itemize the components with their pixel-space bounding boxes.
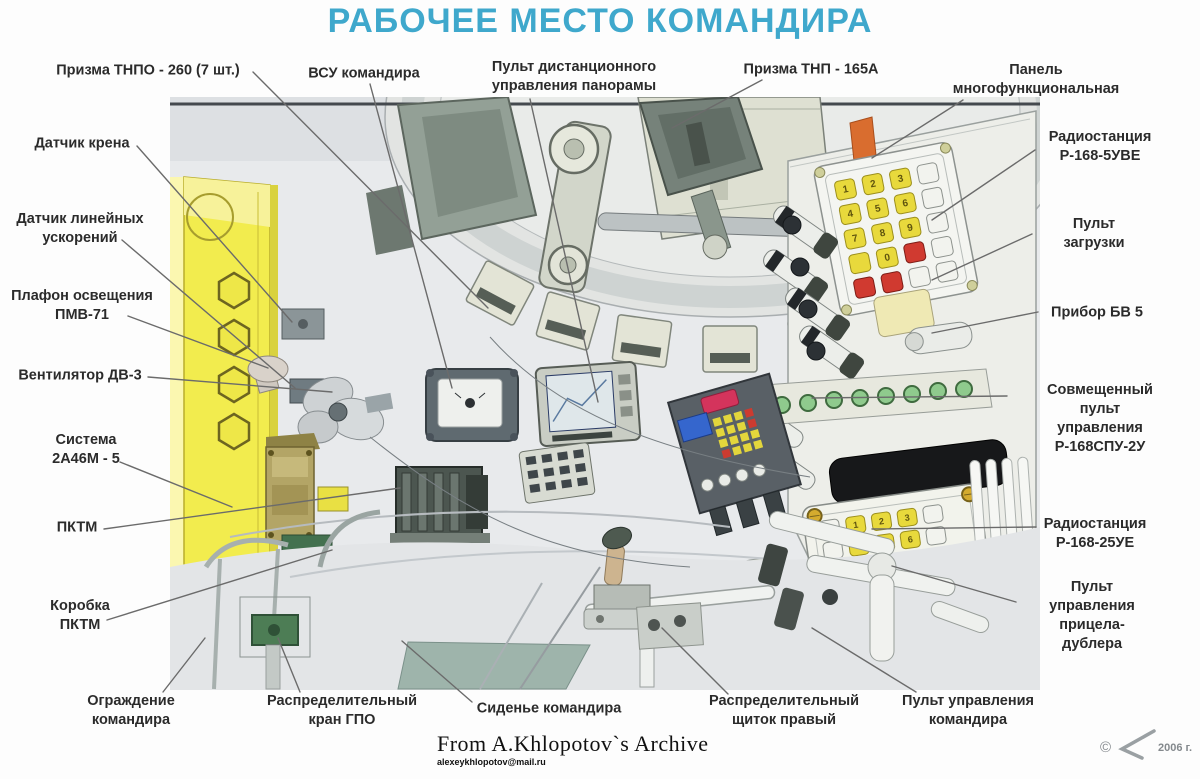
pktm-gun-box: [390, 467, 490, 543]
label-pult-zagruzki: Пульт загрузки: [1041, 215, 1147, 253]
panorama-keypad: [519, 442, 596, 503]
right-distribution-box: [637, 603, 704, 649]
keypad-key: [935, 260, 958, 282]
keypad-key: [922, 504, 943, 523]
label-pult-panoramy: Пульт дистанционного управления панорамы: [492, 58, 656, 96]
label-pult-upravleniya-komandira: Пульт управления командира: [902, 692, 1034, 730]
copyright-icon: ©: [1100, 739, 1111, 756]
label-ograzhdenie-komandira: Ограждение командира: [87, 692, 175, 730]
label-vsu-komandira: ВСУ командира: [308, 65, 419, 84]
roll-sensor: [282, 309, 324, 339]
multifunction-panel: 1234567890: [813, 141, 979, 317]
keypad-key: [931, 236, 954, 258]
copyright-mark: © 2006 г.: [1096, 729, 1196, 771]
archive-credit-email: alexeykhlopotov@mail.ru: [437, 757, 709, 767]
turret-interior-scene: 1234567890: [170, 97, 1040, 690]
keypad-key: [880, 271, 903, 293]
keypad-key: [921, 187, 944, 209]
keypad-key: [903, 241, 926, 263]
page-title: РАБОЧЕЕ МЕСТО КОМАНДИРА: [0, 2, 1200, 41]
keypad-key: [926, 211, 949, 233]
label-radio-r168-25ue: Радиостанция Р-168-25УЕ: [1044, 515, 1147, 553]
label-sistema-2a46m: Система 2А46М - 5: [52, 431, 120, 469]
label-radio-r168-5uve: Радиостанция Р-168-5УВЕ: [1049, 128, 1152, 166]
label-prizma-tnpo-260: Призма ТНПО - 260 (7 шт.): [56, 62, 240, 81]
archive-credit: From A.Khlopotov`s Archive alexeykhlopot…: [437, 731, 709, 767]
keypad-key: [925, 526, 946, 545]
chevron-logo-icon: [1116, 729, 1158, 765]
label-panel-mnogofunkcionalnaya: Панель многофункциональная: [953, 61, 1120, 99]
vsu-device: [426, 369, 518, 441]
copyright-year: 2006 г.: [1158, 742, 1192, 754]
label-korobka-pktm: Коробка ПКТМ: [50, 597, 110, 635]
label-sovmeshchenny-pult: Совмещенный пульт управления Р-168СПУ-2У: [1047, 381, 1153, 457]
archive-credit-text: From A.Khlopotov`s Archive: [437, 731, 709, 757]
keypad-key: [908, 266, 931, 288]
panorama-remote-display: [535, 362, 640, 447]
label-plafon-pmv71: Плафон освещения ПМВ-71: [11, 287, 153, 325]
label-sidene-komandira: Сиденье командира: [477, 700, 622, 719]
label-pribor-bv5: Прибор БВ 5: [1051, 304, 1143, 323]
keypad-key: [848, 252, 871, 274]
keypad-key: [916, 162, 939, 184]
label-ventilyator-dv3: Вентилятор ДВ-3: [18, 367, 141, 386]
label-pktm: ПКТМ: [57, 519, 98, 538]
label-pult-pritsela-dublera: Пульт управления прицела-дублера: [1038, 578, 1146, 654]
label-raspred-shchitok: Распределительный щиток правый: [709, 692, 859, 730]
label-raspred-kran-gpo: Распределительный кран ГПО: [267, 692, 417, 730]
label-datchik-krena: Датчик крена: [34, 135, 129, 154]
keypad-key: [853, 276, 876, 298]
diagram-image: 1234567890: [170, 97, 1040, 690]
label-datchik-uskoreniy: Датчик линейных ускорений: [16, 210, 143, 248]
label-prizma-tnp-165a: Призма ТНП - 165А: [744, 61, 879, 80]
